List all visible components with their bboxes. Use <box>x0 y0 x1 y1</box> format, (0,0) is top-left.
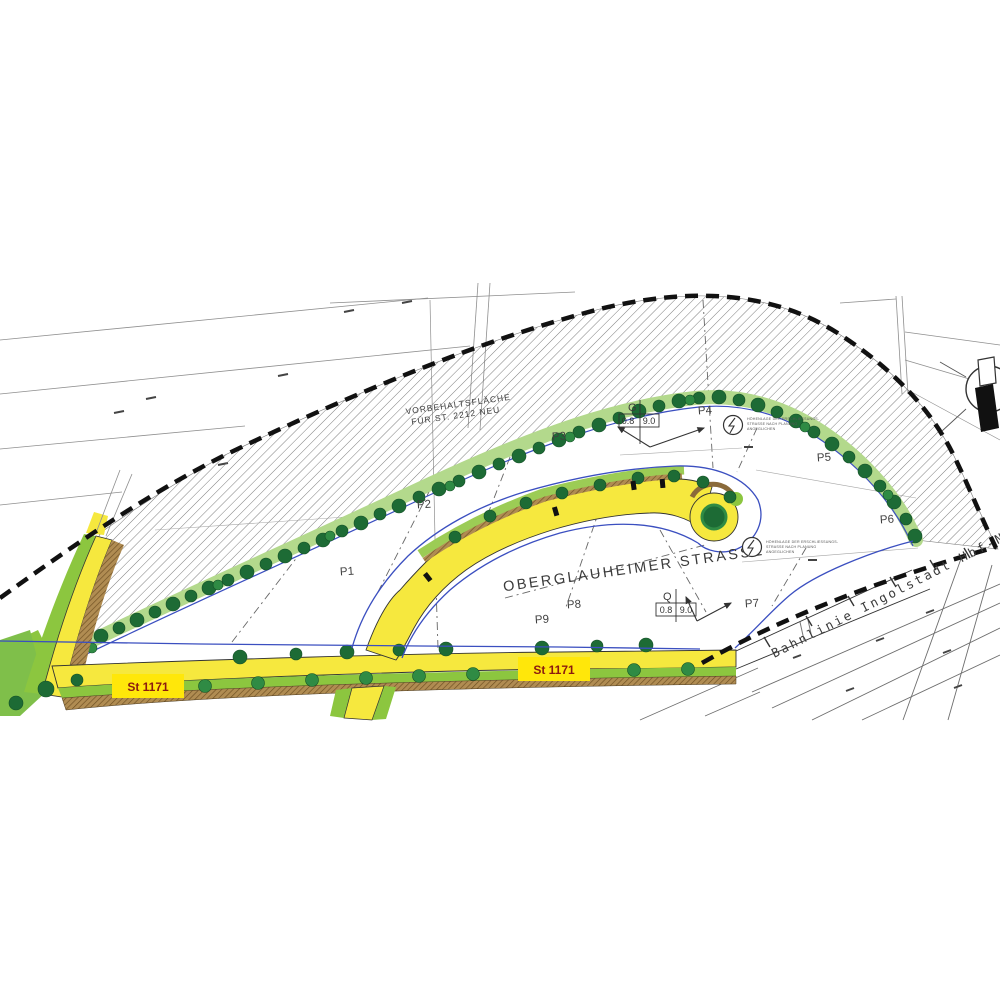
note-line: ANGEGLICHEN <box>747 427 776 431</box>
note-line: HÖHENLAGE DER ERSCHLIESSUNGS- <box>766 540 839 544</box>
bulb-center-tree-icon <box>702 505 726 529</box>
parcel-label-p4: P4 <box>698 404 713 417</box>
street-name-label: OBERGLAUHEIMER STRASSE <box>502 543 765 596</box>
road-badge-st1171-right: St 1171 <box>518 657 590 681</box>
zoning-top-height: 9.0 <box>643 416 656 426</box>
utility-circle-icon <box>743 538 762 557</box>
zoning-bottom-letter: Q <box>663 591 672 603</box>
site-plan-canvas: P1 P2 P3 P4 P5 P6 P7 P8 P9 VORBEHALTSFLÄ… <box>0 0 1000 996</box>
road-badge-text: St 1171 <box>127 680 169 694</box>
parcel-label-p7: P7 <box>745 598 760 611</box>
note-line: STRASSE NACH PLANUNG <box>766 545 816 549</box>
zoning-top-grz: 0.8 <box>622 416 635 426</box>
parcel-label-p9: P9 <box>535 614 550 627</box>
parcel-label-p3: P3 <box>552 431 567 444</box>
utility-circle-icon <box>724 416 743 435</box>
road-badge-text: St 1171 <box>533 663 575 677</box>
north-symbol <box>940 357 1000 432</box>
parcel-label-p5: P5 <box>817 452 832 465</box>
road-badge-st1171-left: St 1171 <box>112 674 184 698</box>
note-line: STRASSE NACH PLANUNG <box>747 422 797 426</box>
parcel-label-p8: P8 <box>567 599 582 612</box>
parcel-label-p2: P2 <box>417 499 432 512</box>
parcel-label-p6: P6 <box>880 514 895 527</box>
zoning-top-letter: G <box>628 402 637 414</box>
zoning-bottom-grz: 0.8 <box>660 605 673 615</box>
note-line: HÖHENLAGE DER ERSCHLIESSUNGS- <box>747 417 820 421</box>
parcel-label-p1: P1 <box>340 566 355 579</box>
note-line: ANGEGLICHEN <box>766 550 795 554</box>
